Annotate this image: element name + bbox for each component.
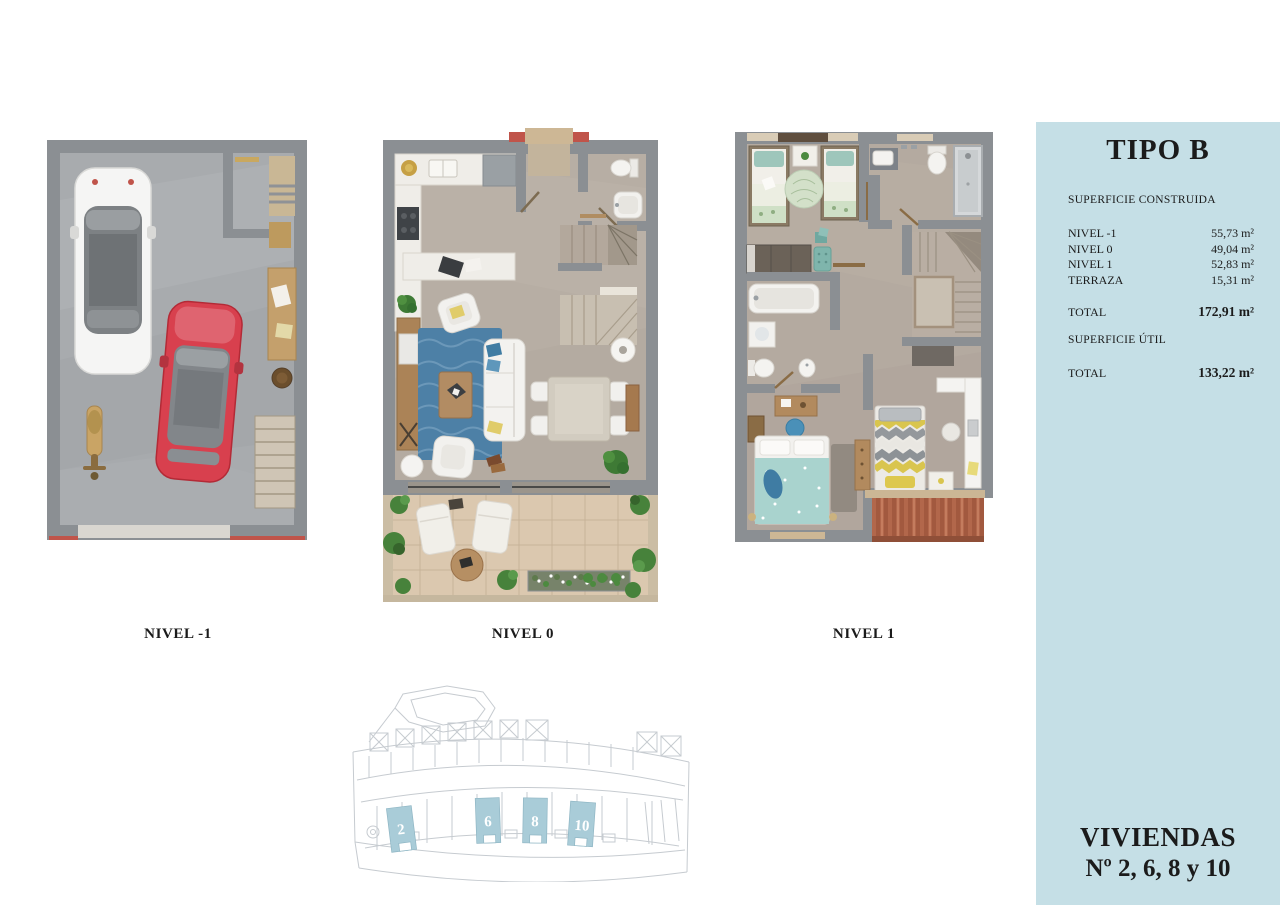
sideboard [626, 385, 639, 431]
plan-label-nivel1: NIVEL 1 [833, 626, 895, 643]
armchair-bottom [431, 435, 475, 479]
roof-x-units [370, 720, 681, 756]
pouf [401, 455, 423, 477]
type-title: TIPO B [1036, 134, 1280, 167]
lounger-2 [471, 500, 513, 554]
table-row: NIVEL 1 52,83 m² [1068, 257, 1254, 273]
row-value: 15,31 m² [1211, 273, 1254, 289]
garage-door [78, 525, 230, 538]
bedside-rug [831, 444, 857, 512]
built-total-row: TOTAL 172,91 m² [1068, 304, 1254, 320]
unit-number: 6 [484, 814, 493, 830]
site-plan: 2 6 8 10 [345, 682, 697, 882]
stairs-nivel1 [902, 225, 983, 366]
sofa [484, 339, 525, 441]
stairs-upper [558, 225, 637, 271]
viviendas-numbers: Nº 2, 6, 8 y 10 [1036, 855, 1280, 883]
row-label: NIVEL 0 [1068, 242, 1113, 258]
blue-stool [786, 419, 804, 437]
table-row: NIVEL -1 55,73 m² [1068, 226, 1254, 242]
fridge [483, 155, 516, 186]
terrace [383, 495, 658, 602]
info-sidebar: TIPO B SUPERFICIE CONSTRUIDA NIVEL -1 55… [1036, 122, 1280, 905]
unit-number: 10 [574, 818, 590, 835]
row-label: TERRAZA [1068, 273, 1123, 289]
siteplan-unit-8: 8 [523, 798, 548, 843]
floor-plan-nivel-minus1-rendering [47, 140, 307, 540]
row-value: 52,83 m² [1211, 257, 1254, 273]
wardrobe [747, 245, 811, 273]
workbench [268, 268, 296, 360]
brochure-page: NIVEL -1 NIVEL 0 NIVEL 1 [0, 0, 1280, 905]
siteplan-unit-2: 2 [386, 806, 416, 853]
built-surface-heading: SUPERFICIE CONSTRUIDA [1068, 194, 1216, 206]
tool-rack [235, 157, 259, 162]
total-value: 133,22 m² [1198, 365, 1254, 381]
row-value: 55,73 m² [1211, 226, 1254, 242]
stairs-lower [560, 287, 637, 345]
viviendas-footer: VIVIENDAS Nº 2, 6, 8 y 10 [1036, 822, 1280, 883]
roof-tiles [865, 490, 985, 542]
total-label: TOTAL [1068, 366, 1106, 381]
tv-sideboard [397, 318, 420, 450]
total-value: 172,91 m² [1198, 304, 1254, 320]
total-label: TOTAL [1068, 305, 1106, 320]
floor-plan-nivel0-rendering [383, 128, 658, 602]
stairwell-void [915, 277, 953, 327]
viviendas-title: VIVIENDAS [1036, 822, 1280, 853]
row-label: NIVEL -1 [1068, 226, 1117, 242]
floor-plan-nivel1-rendering [735, 132, 993, 542]
siteplan-unit-6: 6 [475, 798, 501, 844]
unit-number: 8 [531, 814, 539, 830]
row-label: NIVEL 1 [1068, 257, 1113, 273]
table-row: NIVEL 0 49,04 m² [1068, 242, 1254, 258]
single-bed-2 [821, 146, 859, 220]
siteplan-unit-10: 10 [568, 801, 596, 847]
single-bed-1 [749, 146, 789, 226]
useful-total-row: TOTAL 133,22 m² [1068, 365, 1254, 381]
cooktop [397, 207, 419, 240]
ottoman [814, 247, 831, 271]
entry-canopy [525, 128, 573, 144]
useful-surface-heading: SUPERFICIE ÚTIL [1068, 334, 1166, 346]
row-value: 49,04 m² [1211, 242, 1254, 258]
coffee-table [439, 372, 472, 418]
garage-stairs [255, 416, 295, 508]
table-row: TERRAZA 15,31 m² [1068, 273, 1254, 289]
plan-label-nivel0: NIVEL 0 [492, 626, 554, 643]
built-surface-table: NIVEL -1 55,73 m² NIVEL 0 49,04 m² NIVEL… [1068, 226, 1254, 288]
plan-label-nivel-minus1: NIVEL -1 [144, 626, 212, 643]
white-car [70, 168, 156, 374]
